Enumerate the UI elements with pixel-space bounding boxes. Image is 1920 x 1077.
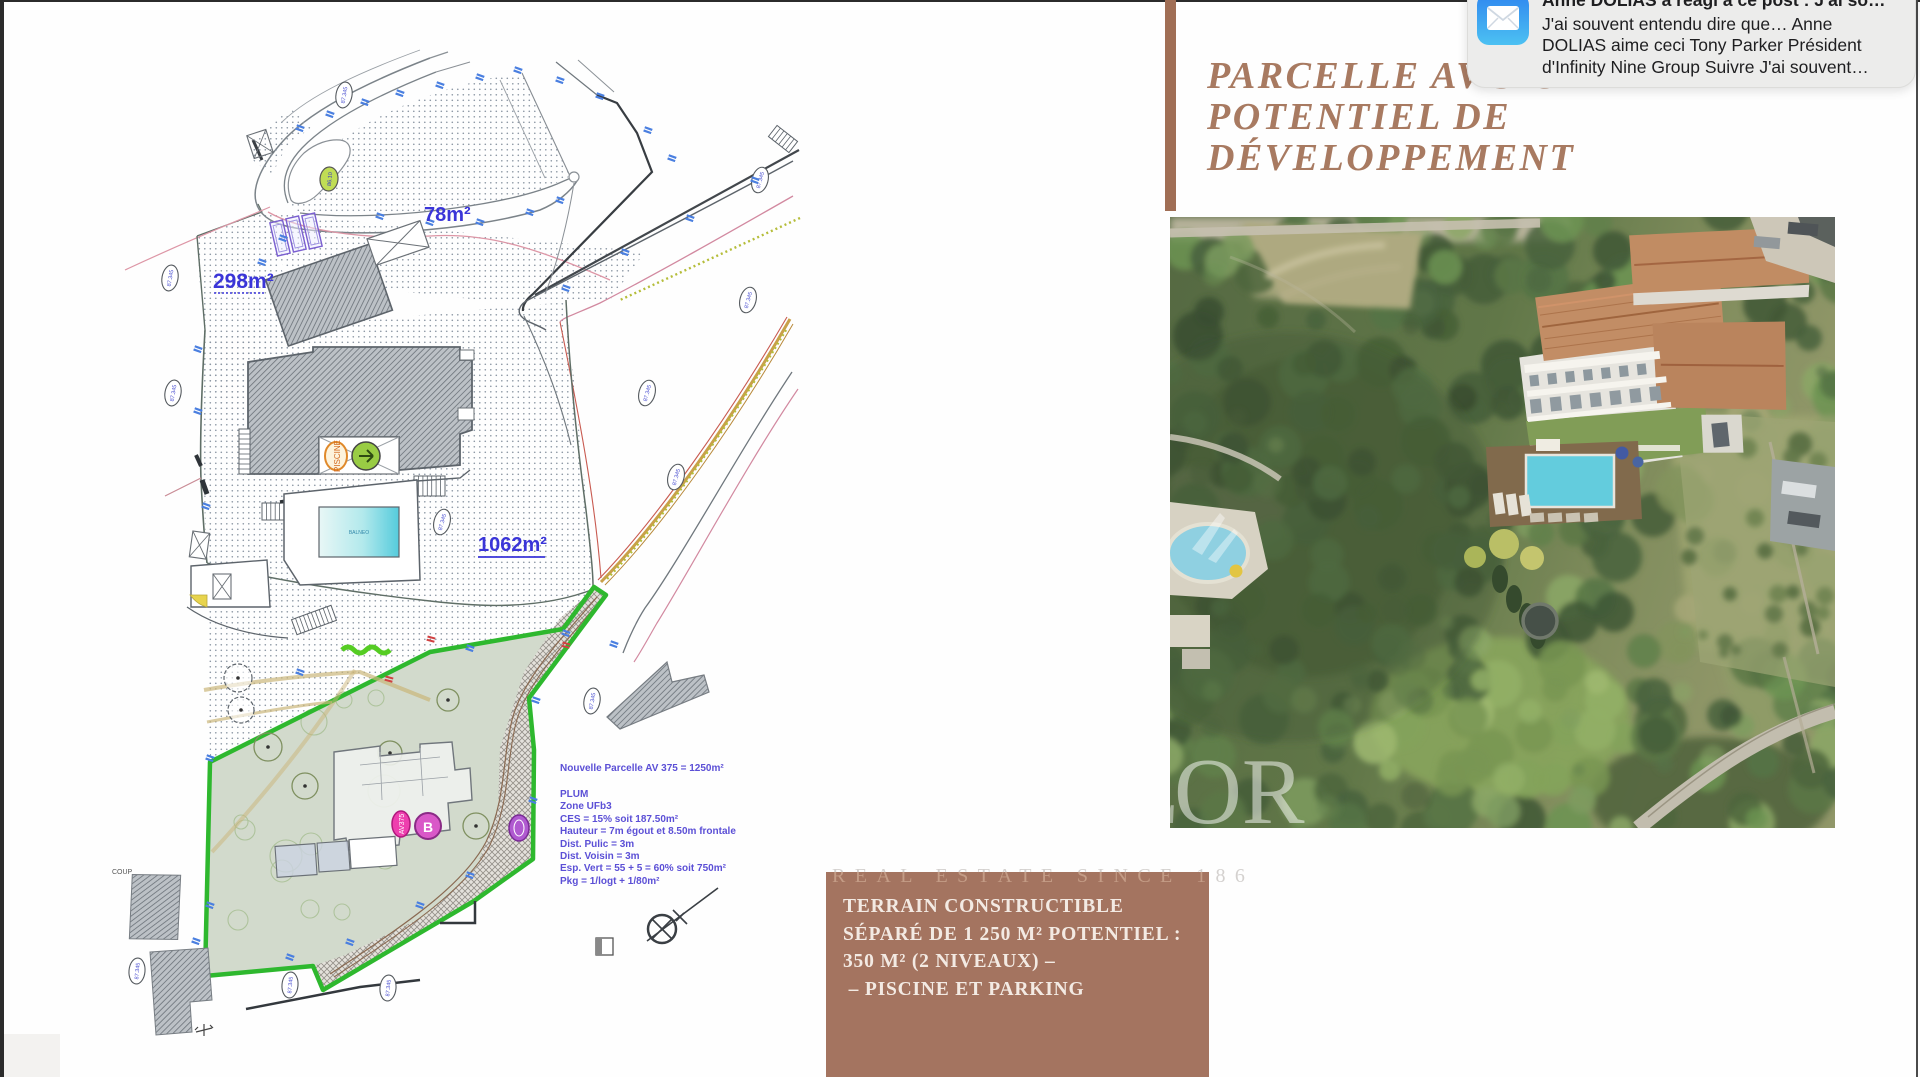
svg-text:86.10: 86.10 [327, 172, 334, 186]
svg-text:1062m²: 1062m² [478, 534, 547, 556]
svg-text:L: L [1170, 740, 1179, 828]
svg-text:CES = 15% soit 187.50m²: CES = 15% soit 187.50m² [560, 814, 679, 825]
svg-text:Dist. Pulic = 3m: Dist. Pulic = 3m [560, 839, 634, 850]
svg-text:78m²: 78m² [424, 204, 471, 226]
svg-text:AV375: AV375 [399, 814, 406, 835]
svg-text:PLUM: PLUM [560, 789, 588, 800]
svg-text:298m²: 298m² [213, 270, 274, 293]
svg-text:COUP: COUP [112, 869, 133, 876]
svg-text:BALNEO: BALNEO [349, 530, 369, 536]
svg-text:Nouvelle Parcelle AV 375 = 125: Nouvelle Parcelle AV 375 = 1250m² [560, 763, 724, 774]
svg-text:Dist. Voisin = 3m: Dist. Voisin = 3m [560, 851, 640, 862]
svg-text:Hauteur = 7m égout et 8.50m fr: Hauteur = 7m égout et 8.50m frontale [560, 826, 736, 837]
svg-text:Pkg = 1/logt + 1/80m²: Pkg = 1/logt + 1/80m² [560, 876, 660, 887]
svg-text:PISCINE: PISCINE [333, 440, 342, 472]
svg-text:Esp. Vert = 55 + 5 = 60% soit: Esp. Vert = 55 + 5 = 60% soit 750m² [560, 863, 727, 874]
svg-text:OR: OR [1174, 740, 1305, 828]
svg-text:Zone UFb3: Zone UFb3 [560, 801, 612, 812]
svg-text:B: B [423, 819, 433, 835]
